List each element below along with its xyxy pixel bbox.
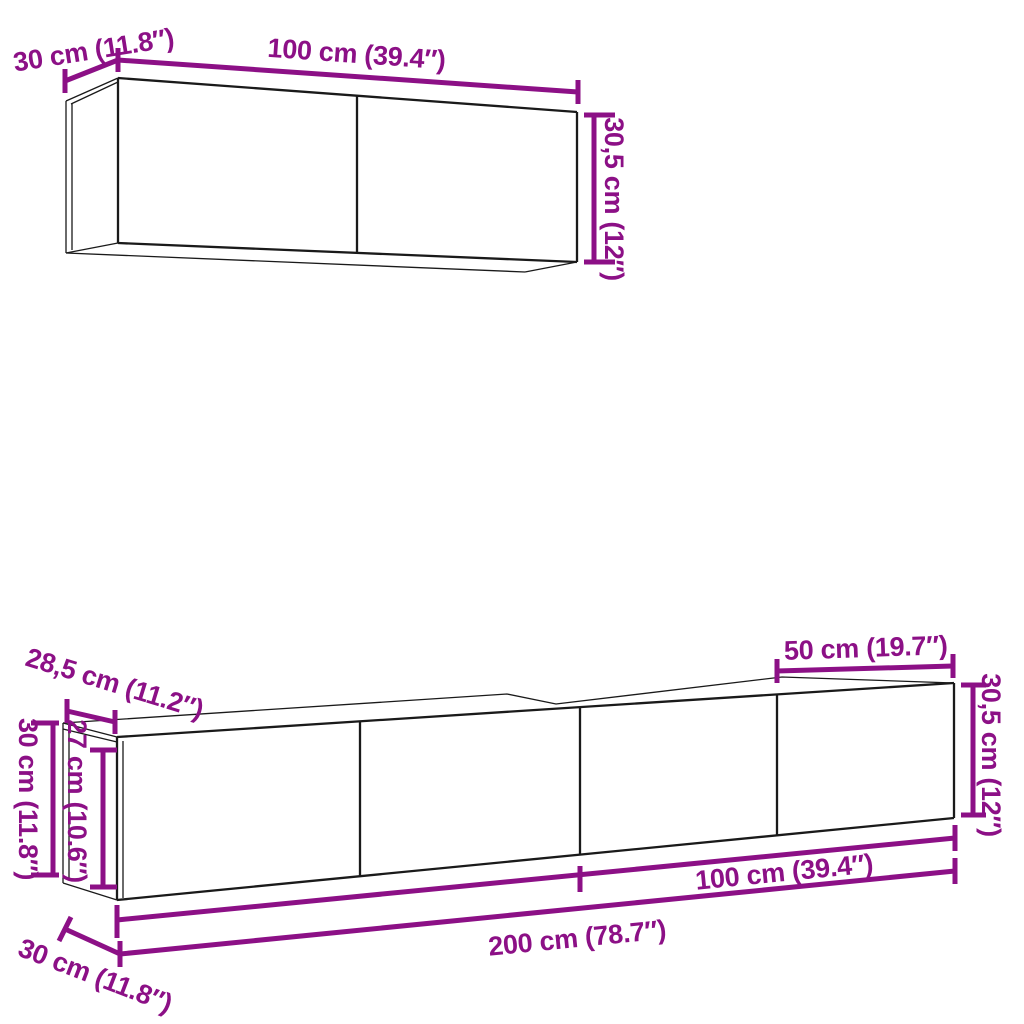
dimension-diagram-canvas: 100 cm (39.4″) 30 cm (11.8″) 30,5 cm (12…	[0, 0, 1024, 1024]
bottom-door-height-label: 27 cm (10.6″)	[62, 719, 92, 883]
bottom-section-width-label: 50 cm (19.7″)	[783, 630, 948, 666]
top-cabinet-side-bottom-edge	[66, 243, 118, 253]
bottom-section-width-dimension-line	[777, 666, 953, 671]
bottom-total-width-label: 200 cm (78.7″)	[487, 914, 667, 961]
bottom-unit: 28,5 cm (11.2″) 30 cm (11.8″) 27 cm (10.…	[13, 630, 1006, 1018]
top-cabinet-underside-right-edge	[525, 262, 577, 272]
bottom-right-height-label: 30,5 cm (12″)	[976, 673, 1006, 837]
top-cabinet-outline	[66, 78, 577, 272]
top-cabinet-front-bottom-edge	[118, 243, 577, 262]
top-cabinet: 100 cm (39.4″) 30 cm (11.8″) 30,5 cm (12…	[11, 23, 629, 281]
top-cabinet-side-top-edge	[66, 78, 118, 101]
top-width-label: 100 cm (39.4″)	[267, 33, 447, 75]
product-dimension-diagram: 100 cm (39.4″) 30 cm (11.8″) 30,5 cm (12…	[0, 0, 1024, 1024]
bottom-unit-front-top-edge	[117, 683, 954, 737]
bottom-left-height-label: 30 cm (11.8″)	[13, 718, 43, 880]
top-cabinet-front-top-edge	[118, 78, 577, 112]
top-cabinet-side-top-edge-inner	[71, 82, 118, 104]
top-height-label: 30,5 cm (12″)	[599, 117, 629, 281]
top-cabinet-labels: 100 cm (39.4″) 30 cm (11.8″) 30,5 cm (12…	[11, 23, 629, 281]
